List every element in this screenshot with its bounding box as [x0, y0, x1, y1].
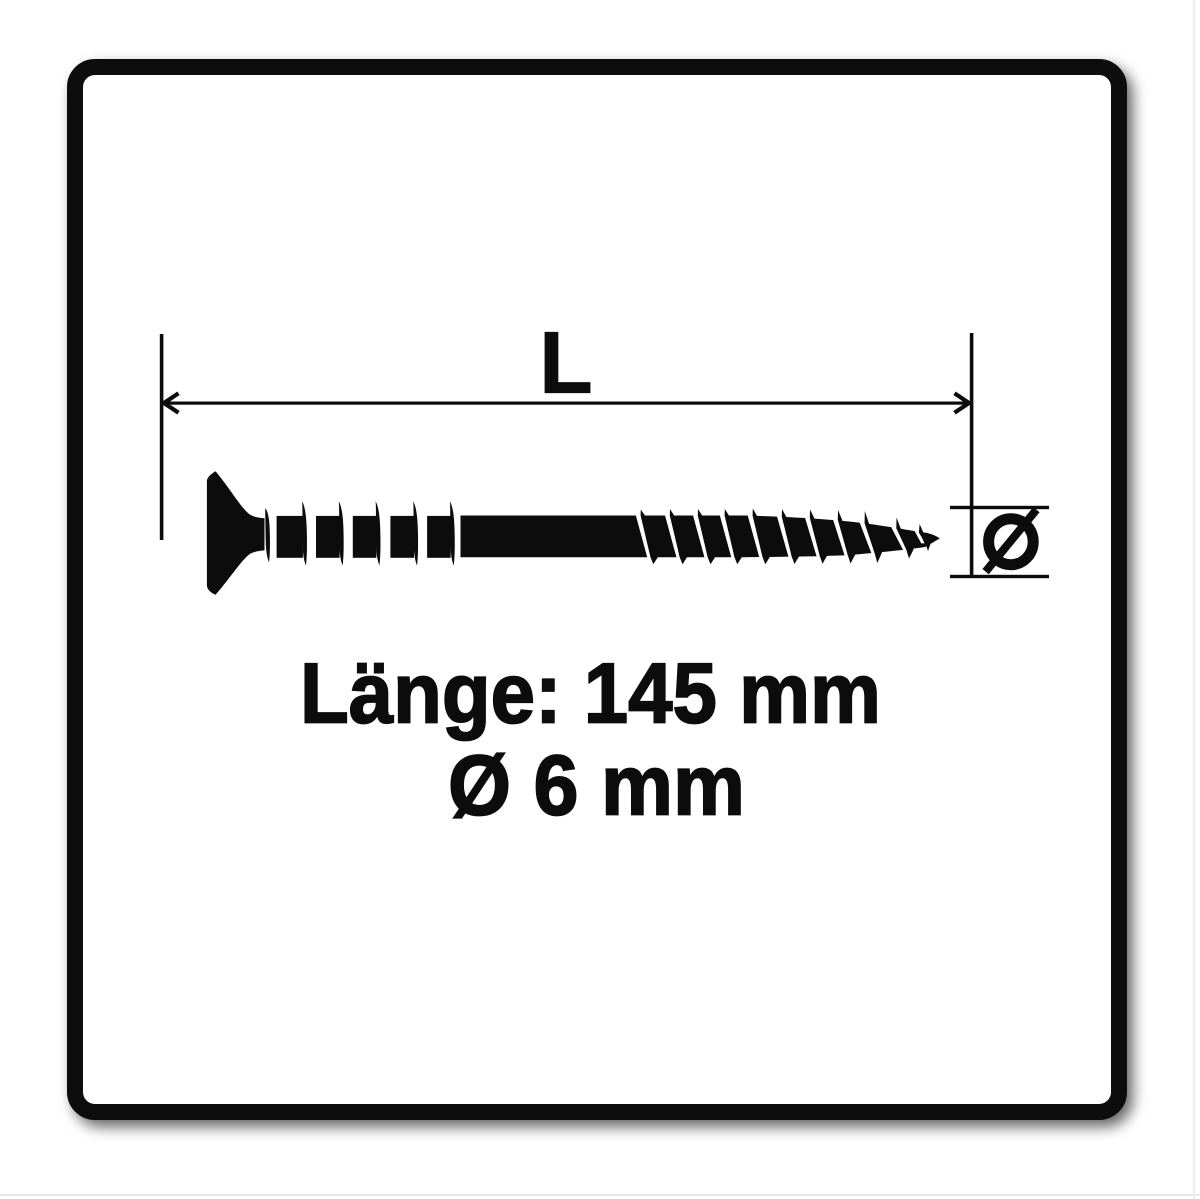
svg-text:Länge: 145 mm: Länge: 145 mm — [300, 647, 881, 742]
svg-text:L: L — [539, 315, 592, 412]
svg-text:Ø 6 mm: Ø 6 mm — [448, 739, 745, 834]
